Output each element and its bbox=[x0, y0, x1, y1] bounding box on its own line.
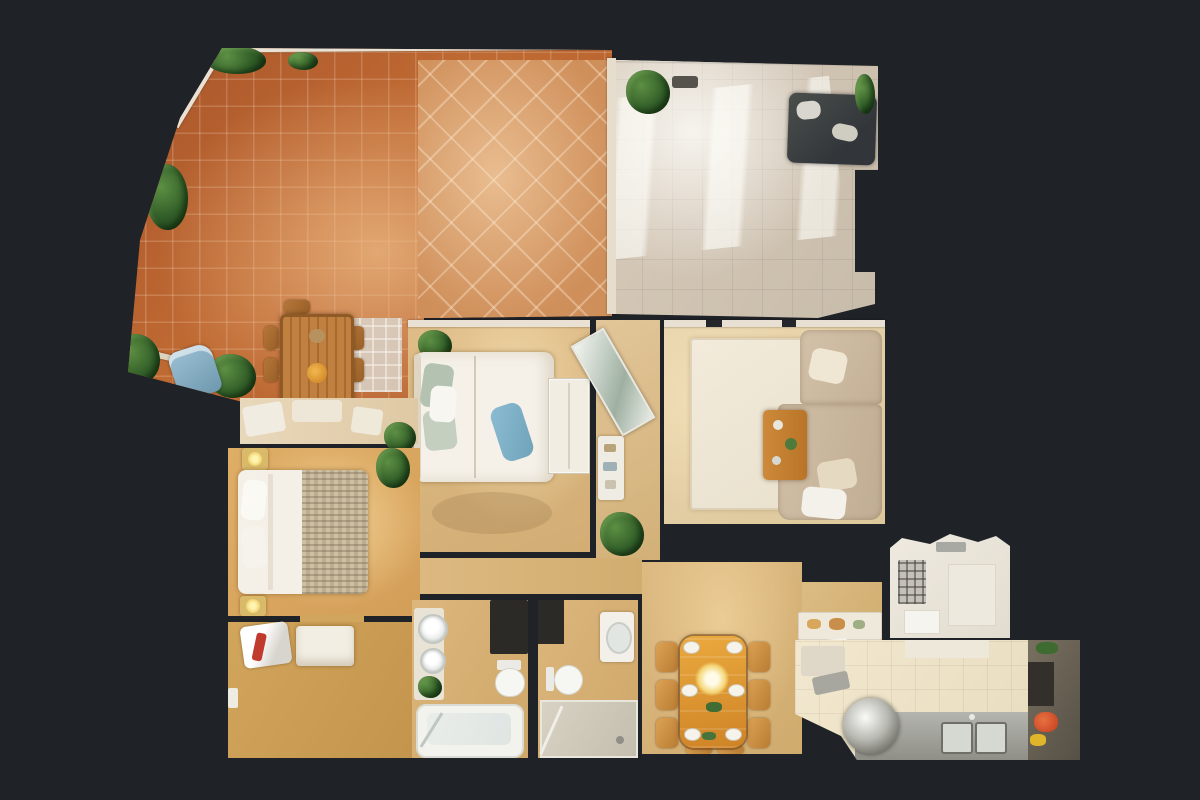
appliance bbox=[948, 564, 996, 626]
washbasin bbox=[418, 614, 448, 644]
table-greens bbox=[702, 732, 716, 740]
serving-counter bbox=[798, 612, 882, 640]
bedroom-wall-top bbox=[408, 320, 590, 327]
room-dressing[interactable] bbox=[228, 622, 420, 758]
dining-chair bbox=[748, 718, 770, 748]
sofa-pillow bbox=[796, 100, 822, 120]
outdoor-chair bbox=[284, 300, 310, 314]
place-setting bbox=[726, 641, 743, 654]
place-setting bbox=[725, 728, 742, 741]
terrace-wall-top bbox=[218, 43, 614, 53]
room-utility[interactable] bbox=[890, 534, 1010, 638]
basin bbox=[606, 622, 632, 654]
bench bbox=[296, 626, 354, 666]
clutter bbox=[292, 400, 342, 422]
room-hallway[interactable] bbox=[420, 558, 642, 594]
towel bbox=[228, 688, 238, 708]
wall-notch bbox=[706, 320, 722, 327]
sunroom-wall-top bbox=[614, 52, 878, 65]
shelf-item bbox=[604, 444, 616, 452]
terrace-diagonal-tiles bbox=[418, 60, 612, 318]
room-dining[interactable] bbox=[642, 562, 802, 754]
glass-line bbox=[540, 706, 564, 755]
food-item bbox=[853, 620, 865, 629]
plant-icon bbox=[418, 676, 442, 698]
wall-divider bbox=[607, 58, 616, 314]
wardrobe bbox=[548, 378, 590, 474]
toilet-bowl bbox=[554, 665, 583, 695]
kitchen-sink bbox=[941, 722, 973, 754]
table-decor bbox=[773, 420, 783, 430]
master-bed bbox=[238, 470, 368, 594]
floorplan-canvas bbox=[0, 0, 1200, 800]
kitchen-sink bbox=[975, 722, 1007, 754]
side-counter bbox=[1028, 640, 1080, 760]
pendant-lamp bbox=[695, 662, 729, 696]
plant-icon bbox=[376, 448, 410, 488]
dining-chair bbox=[656, 642, 678, 672]
bathtub bbox=[416, 704, 524, 758]
toilet bbox=[494, 660, 524, 696]
dark-niche bbox=[538, 600, 564, 644]
range-hood bbox=[843, 698, 899, 754]
wall-notch bbox=[782, 320, 796, 327]
sofa-throw bbox=[801, 486, 848, 520]
appliance bbox=[898, 560, 926, 604]
room-guest-bedroom[interactable] bbox=[408, 320, 590, 552]
textured-throw bbox=[302, 470, 368, 594]
steel-shelf bbox=[936, 542, 966, 552]
outdoor-chair bbox=[264, 326, 278, 350]
shelf-item bbox=[605, 480, 616, 489]
shelf-item bbox=[603, 462, 617, 471]
plant-icon bbox=[146, 164, 188, 230]
floor-shadow bbox=[432, 492, 552, 534]
plant-icon bbox=[855, 74, 875, 114]
coffee-table bbox=[763, 410, 807, 480]
food-item bbox=[1030, 734, 1046, 746]
lamp-icon bbox=[248, 452, 262, 466]
living-wall-top bbox=[664, 320, 885, 327]
food-item bbox=[807, 619, 821, 629]
nightstand bbox=[242, 448, 268, 470]
table-decor bbox=[309, 329, 325, 343]
room-kitchen[interactable] bbox=[795, 640, 1080, 762]
table-greens bbox=[706, 702, 722, 712]
dining-chair bbox=[656, 680, 678, 710]
room-living[interactable] bbox=[664, 320, 885, 524]
duvet-fold bbox=[474, 356, 476, 478]
plant-icon bbox=[600, 512, 644, 556]
dining-chair bbox=[656, 718, 678, 748]
clutter bbox=[350, 406, 383, 436]
plant-icon bbox=[288, 52, 318, 70]
room-bathroom-1[interactable] bbox=[412, 600, 528, 758]
toilet-bowl bbox=[495, 668, 525, 697]
food-item bbox=[1034, 712, 1058, 732]
drain bbox=[616, 736, 624, 744]
plant-icon bbox=[114, 334, 160, 384]
bed-pillow bbox=[240, 479, 268, 521]
place-setting bbox=[683, 641, 700, 654]
plant-icon bbox=[206, 46, 266, 74]
appliance-top bbox=[905, 640, 989, 658]
washbasin bbox=[420, 648, 446, 674]
clutter bbox=[242, 401, 287, 437]
place-setting bbox=[681, 684, 698, 697]
dark-vanity bbox=[490, 600, 528, 654]
toilet-tank bbox=[546, 667, 554, 691]
table-decor bbox=[772, 456, 781, 465]
place-setting bbox=[684, 728, 701, 741]
dining-table bbox=[680, 636, 746, 748]
appliance bbox=[904, 610, 940, 634]
toilet bbox=[546, 662, 582, 696]
bed-pillow bbox=[240, 525, 268, 569]
outdoor-chair bbox=[264, 358, 278, 382]
room-master-anteroom[interactable] bbox=[240, 398, 418, 444]
window-bench bbox=[672, 76, 698, 88]
lamp-icon bbox=[246, 599, 260, 613]
dining-chair bbox=[748, 642, 770, 672]
wardrobe-seam bbox=[568, 383, 570, 469]
stovetop bbox=[1028, 662, 1054, 706]
shower bbox=[540, 700, 638, 758]
fruit-bowl bbox=[307, 363, 327, 383]
duvet-fold bbox=[268, 474, 273, 590]
hall-shelf bbox=[598, 436, 624, 500]
room-entry-hall[interactable] bbox=[596, 320, 660, 560]
guest-bed bbox=[414, 352, 554, 482]
nightstand bbox=[240, 596, 266, 616]
food-item bbox=[1036, 642, 1058, 654]
table-decor bbox=[785, 438, 797, 450]
sofa-pillow bbox=[831, 122, 860, 143]
washbasin bbox=[600, 612, 634, 662]
lounge-chair bbox=[166, 341, 223, 402]
place-setting bbox=[728, 684, 745, 697]
room-sunroom[interactable] bbox=[612, 52, 882, 320]
dining-chair bbox=[748, 680, 770, 710]
garment-rack bbox=[239, 621, 292, 669]
room-bathroom-2[interactable] bbox=[538, 600, 638, 758]
faucet bbox=[969, 714, 975, 720]
room-master-bedroom[interactable] bbox=[228, 448, 420, 616]
bed-pillow bbox=[429, 385, 457, 423]
red-garment bbox=[251, 632, 267, 661]
blue-throw-pillow bbox=[488, 400, 536, 463]
food-item bbox=[829, 618, 845, 630]
plant-icon bbox=[626, 70, 670, 114]
